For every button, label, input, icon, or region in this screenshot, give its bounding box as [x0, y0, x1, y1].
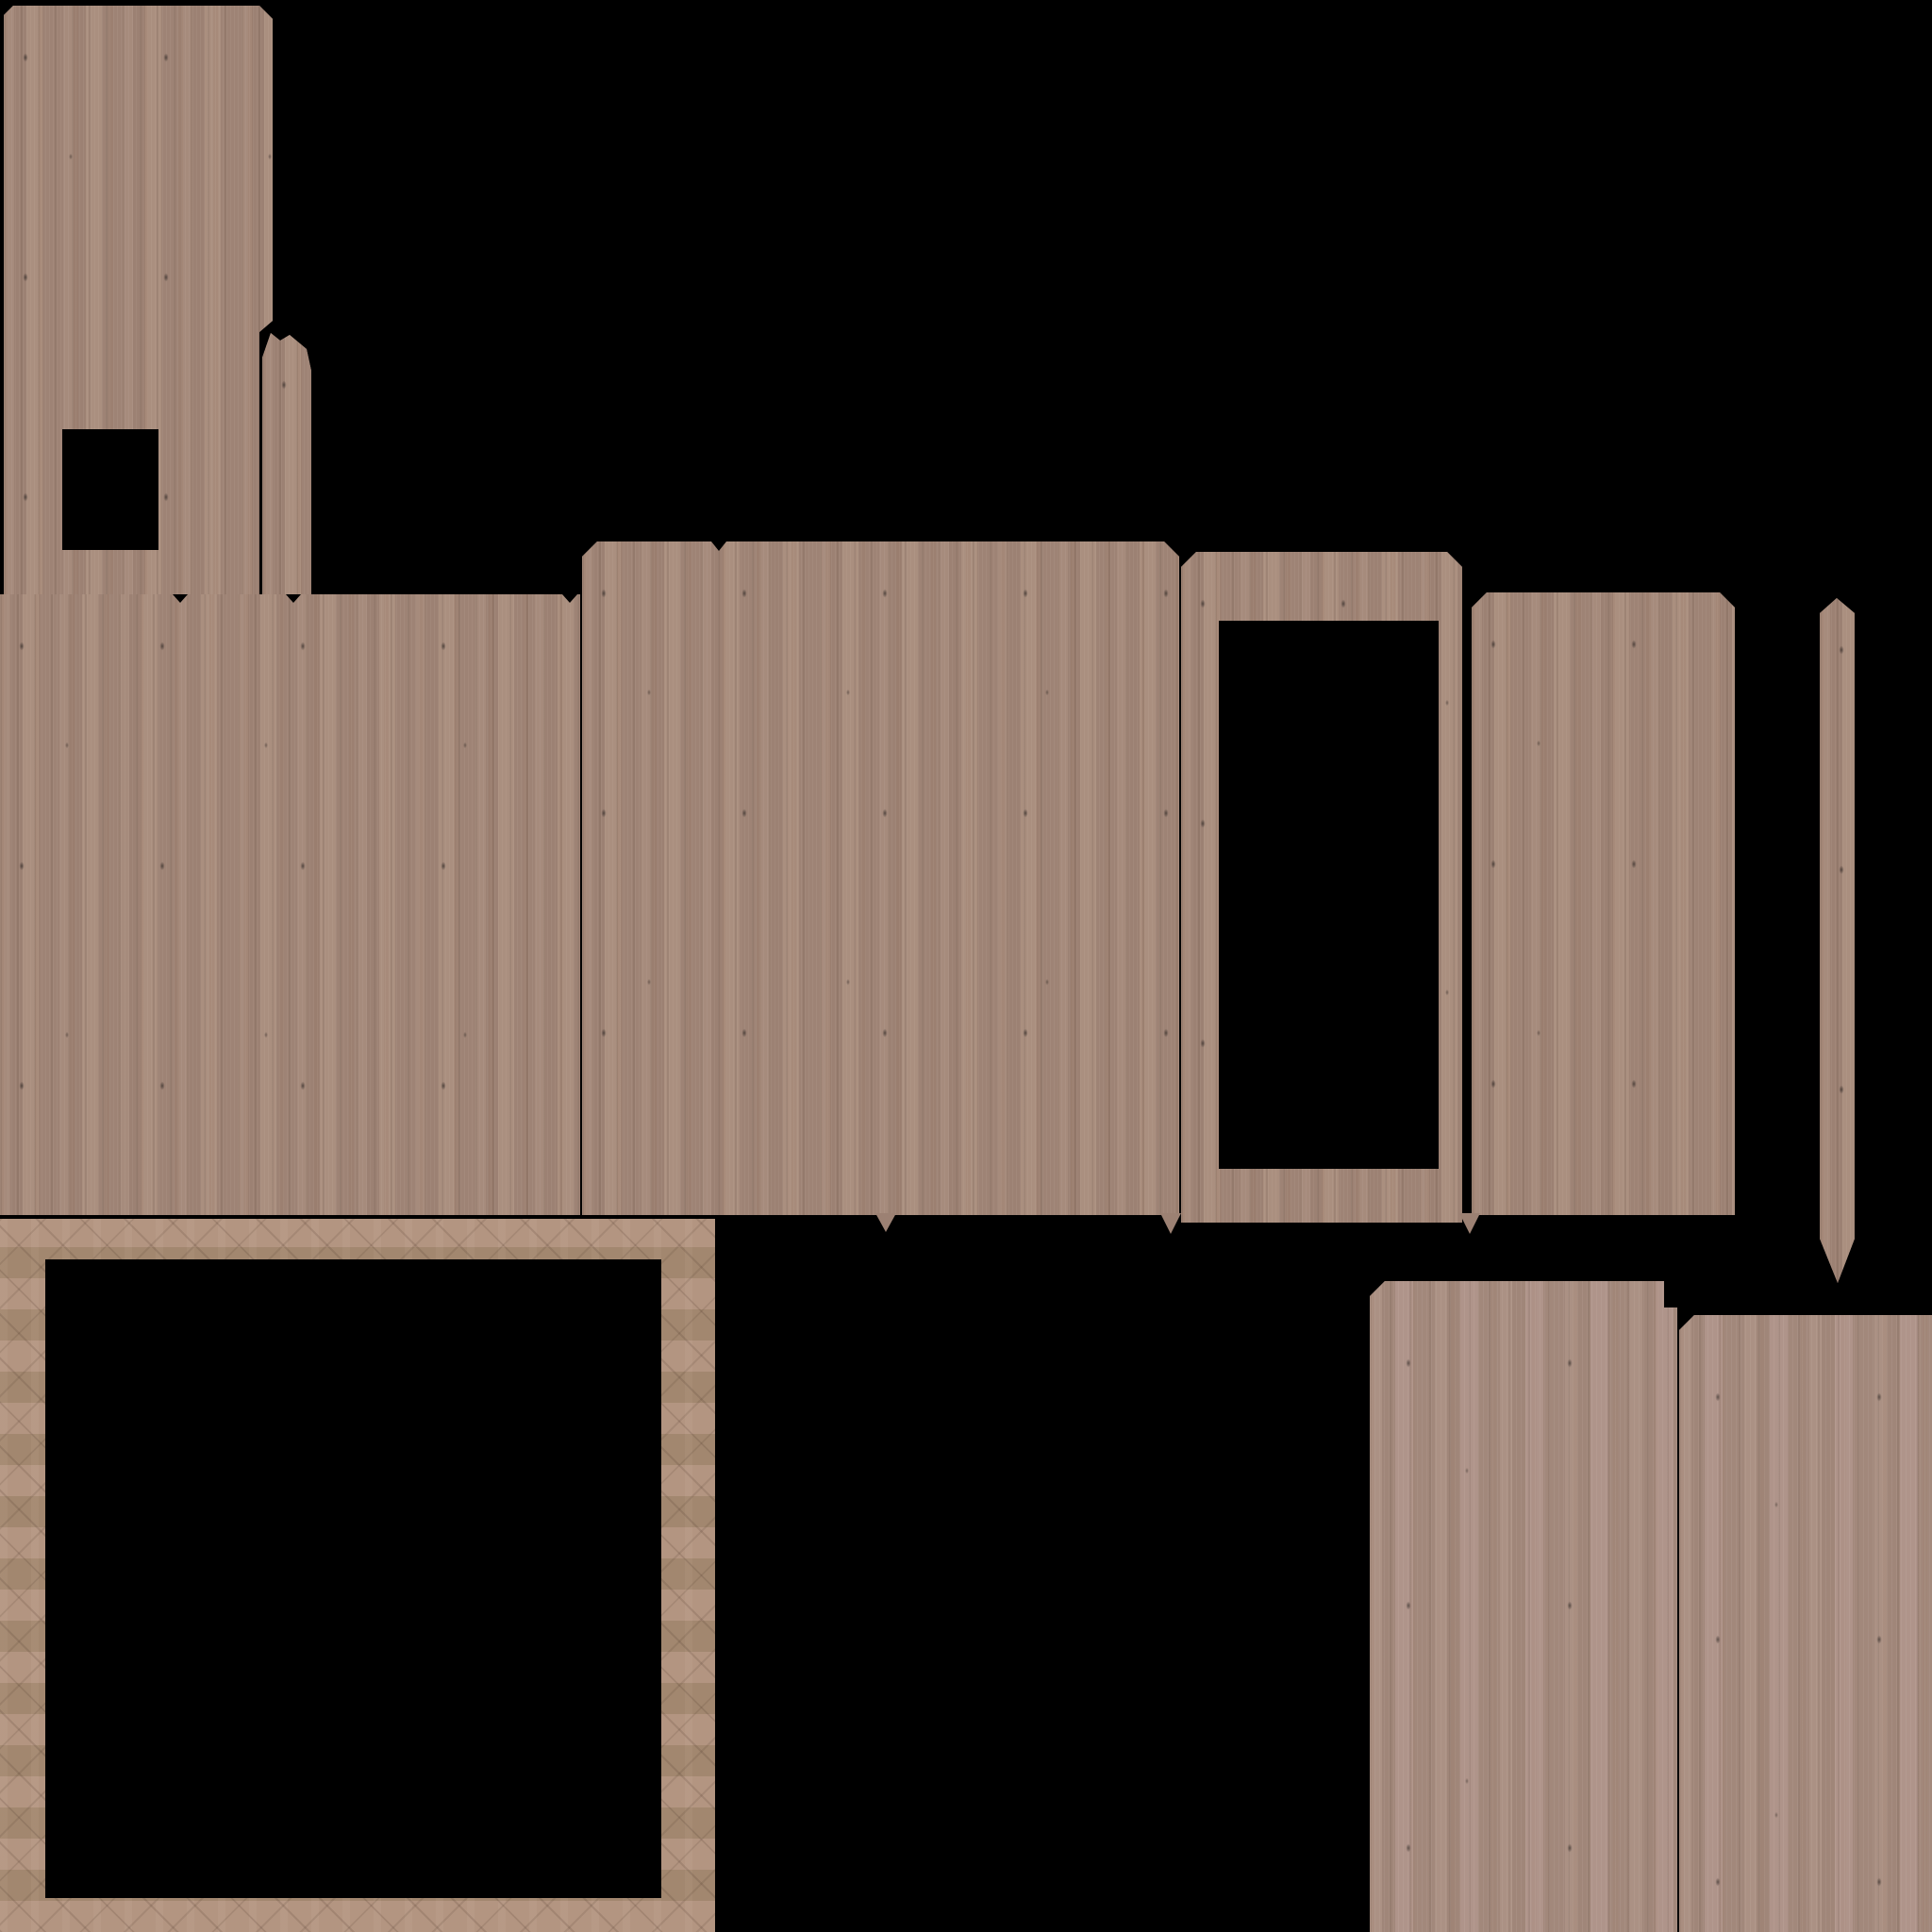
hole-top-left-window: [62, 429, 158, 550]
piece-bottom-left-panel: [1370, 1281, 1677, 1932]
piece-narrow-slat: [1820, 598, 1855, 1283]
seam-tab-bottom-2: [1160, 1213, 1181, 1234]
piece-mid-left-panel: [0, 594, 580, 1215]
seam-tab-bottom-3: [1459, 1213, 1480, 1234]
piece-mid-center-panel: [582, 541, 1179, 1215]
hole-parquet-frame: [45, 1259, 661, 1898]
piece-bottom-right-panel: [1679, 1315, 1932, 1932]
texture-atlas-canvas: [0, 0, 1932, 1932]
seam-tab-bottom-1: [875, 1213, 896, 1232]
hole-door-frame: [1219, 621, 1439, 1169]
piece-top-left-slat: [262, 333, 311, 596]
piece-mid-right-panel: [1472, 592, 1735, 1215]
